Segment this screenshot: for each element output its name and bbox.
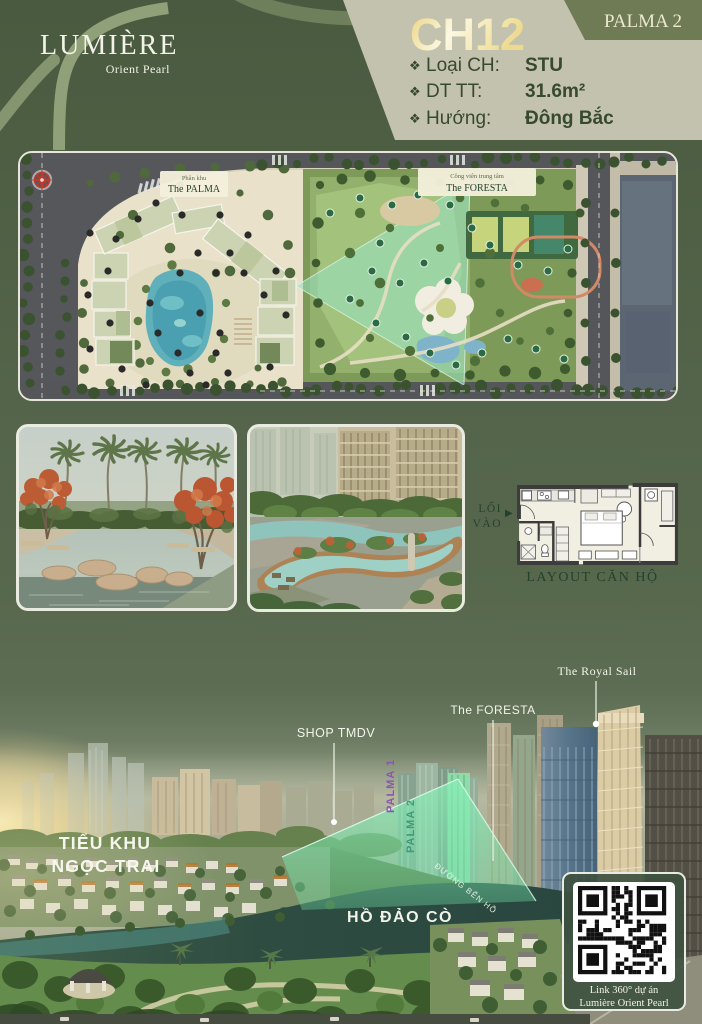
- svg-text:Phân khu: Phân khu: [182, 175, 207, 182]
- svg-text:PALMA 2: PALMA 2: [405, 799, 417, 853]
- svg-text:The FORESTA: The FORESTA: [450, 703, 535, 717]
- svg-text:The PALMA: The PALMA: [168, 184, 221, 195]
- svg-text:The FORESTA: The FORESTA: [446, 183, 508, 194]
- svg-text:SHOP TMDV: SHOP TMDV: [297, 726, 376, 740]
- svg-text:PALMA 2: PALMA 2: [604, 11, 682, 32]
- svg-text:TIỂU KHU: TIỂU KHU: [59, 832, 151, 853]
- svg-text:PALMA 1: PALMA 1: [385, 759, 397, 813]
- svg-text:CH12: CH12: [410, 9, 525, 60]
- svg-text:HỒ ĐẢO CÒ: HỒ ĐẢO CÒ: [347, 907, 453, 926]
- svg-text:NGỌC TRAI: NGỌC TRAI: [52, 856, 161, 876]
- svg-text:The Royal Sail: The Royal Sail: [558, 664, 637, 678]
- svg-text:Công viên trung tâm: Công viên trung tâm: [450, 173, 504, 180]
